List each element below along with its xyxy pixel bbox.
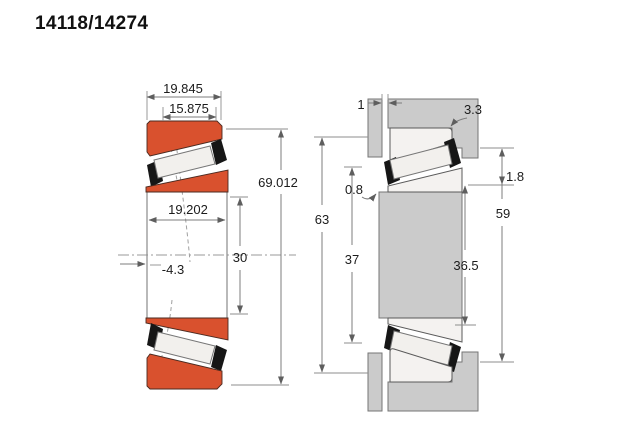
- dim-housing-fillet: 3.3: [464, 102, 482, 117]
- shaft-section: [379, 192, 462, 318]
- dim-housing-shoulder-diameter: 63: [315, 212, 329, 227]
- dim-effective-center: -4.3: [162, 262, 184, 277]
- dim-front-face-gap: 1: [357, 97, 364, 112]
- dim-cup-width: 15.875: [169, 101, 209, 116]
- housing-cover-top: [368, 99, 382, 157]
- dim-overall-width: 19.845: [163, 81, 203, 96]
- dim-cup-backface-diameter: 59: [496, 206, 510, 221]
- dim-outer-diameter: 69.012: [258, 175, 298, 190]
- dim-shaft-fillet: 0.8: [345, 182, 363, 197]
- housing-cover-bottom: [368, 353, 382, 411]
- right-view-mounting-section: 1 3.3 0.8 63 37 36.5 59 1.8: [314, 94, 524, 411]
- dim-cone-backface-diameter: 36.5: [453, 258, 478, 273]
- dim-cone-width: 19.202: [168, 202, 208, 217]
- dim-bore-diameter: 30: [233, 250, 247, 265]
- technical-drawing: 19.845 15.875 19.202 30 69.012 -4.3: [0, 0, 640, 440]
- dim-shaft-shoulder-diameter: 37: [345, 252, 359, 267]
- dim-backface-standout: 1.8: [506, 169, 524, 184]
- left-view-bearing-section: 19.845 15.875 19.202 30 69.012 -4.3: [118, 81, 298, 389]
